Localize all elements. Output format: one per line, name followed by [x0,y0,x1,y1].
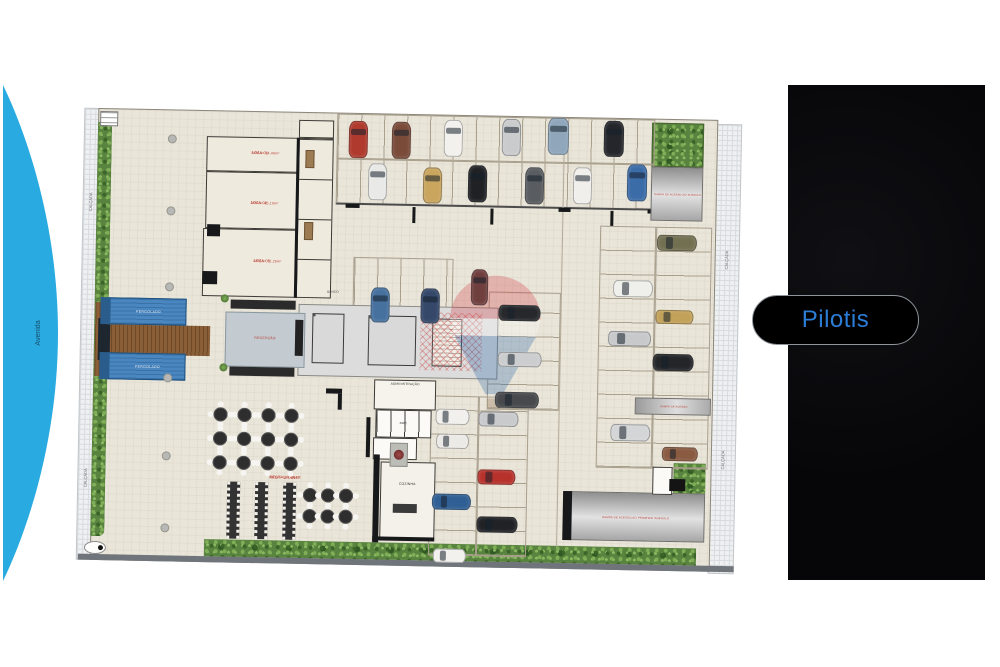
restaurant-long-table [282,483,296,540]
parked-car [444,120,464,157]
restaurant-round-table [320,509,334,523]
parked-car [478,411,518,427]
plan-dynamic-layer [76,106,745,577]
restaurant-round-table [236,456,250,470]
parked-car [657,235,697,252]
restaurant-round-table [302,509,316,523]
street-name-label: Avenida [35,320,42,345]
restaurant-round-table [213,407,227,421]
restaurant-long-table [226,482,240,539]
restaurant-long-table [254,482,268,539]
restaurant-round-table [261,408,275,422]
pilotis-button-label: Pilotis [802,306,870,334]
structural-column [160,523,169,532]
parked-car [652,354,693,372]
parked-car [608,331,651,347]
parked-car [548,118,570,155]
restaurant-round-table [321,488,335,502]
structural-column [162,451,171,460]
restaurant-round-table [213,455,227,469]
restaurant-round-table [338,510,352,524]
parked-car [502,119,522,156]
structural-column [165,282,174,291]
structural-column [166,206,175,215]
restaurant-round-table [339,489,353,503]
restaurant-round-table [213,431,227,445]
parked-car [471,269,489,305]
restaurant-round-table [284,433,298,447]
structural-column [168,134,177,143]
parked-car [477,469,515,485]
parked-car [436,434,469,450]
parked-car [498,352,542,368]
structural-column [163,373,172,382]
parked-car [476,516,517,533]
restaurant-round-table [261,432,275,446]
parked-car [573,167,593,204]
restaurant-round-table [283,457,297,471]
parked-car [370,287,390,322]
parked-car [655,310,693,325]
parked-car [433,548,466,563]
street-shape: Avenida [0,83,70,583]
parked-car [662,447,698,462]
parked-car [610,424,650,442]
parked-car [368,163,388,200]
parked-car [613,280,653,298]
parked-car [349,121,369,158]
parked-car [525,167,545,204]
parked-car [423,167,443,203]
parked-car [468,165,488,202]
restaurant-round-table [260,456,274,470]
parked-car [604,121,625,157]
parked-car [391,122,411,159]
parked-car [432,493,471,510]
restaurant-round-table [284,409,298,423]
parked-car [627,164,648,201]
street-crescent [3,85,58,581]
parked-car [498,305,540,322]
floor-plan: LOJA 01ÁREA= 34,40m² LOJA 02ÁREA= 45,10m… [76,106,745,577]
pilotis-floor-button[interactable]: Pilotis [752,295,919,345]
parked-car [420,288,440,323]
restaurant-round-table [303,488,317,502]
restaurant-round-table [237,408,251,422]
parked-car [495,392,539,409]
parked-car [435,409,469,426]
listing-photo-stage: Avenida LOJA 0 [0,0,1000,667]
restaurant-round-table [237,432,251,446]
